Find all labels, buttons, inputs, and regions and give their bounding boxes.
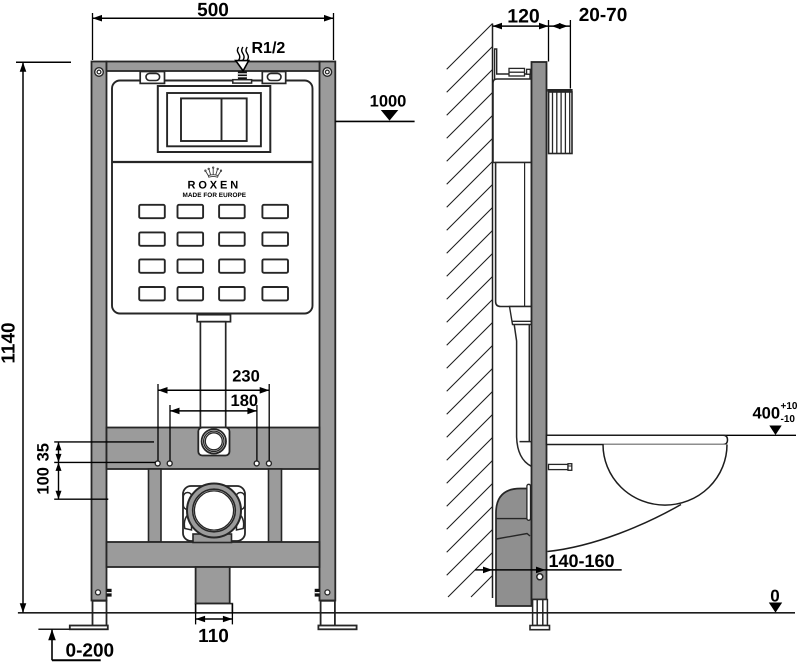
svg-text:1140: 1140 (0, 322, 20, 363)
svg-text:100: 100 (35, 467, 53, 495)
svg-text:500: 500 (197, 0, 229, 21)
svg-text:120: 120 (507, 6, 540, 28)
svg-text:20-70: 20-70 (579, 5, 628, 26)
svg-text:180: 180 (231, 392, 259, 410)
svg-text:-10: -10 (781, 414, 796, 425)
svg-text:230: 230 (232, 368, 260, 386)
svg-text:+10: +10 (781, 401, 798, 412)
svg-text:35: 35 (35, 443, 53, 461)
svg-text:400: 400 (753, 405, 781, 423)
svg-text:MADE FOR EUROPE: MADE FOR EUROPE (183, 192, 247, 199)
svg-text:0-200: 0-200 (66, 641, 115, 662)
svg-text:ROXEN: ROXEN (188, 180, 242, 192)
svg-text:110: 110 (198, 626, 229, 647)
svg-text:1000: 1000 (370, 93, 407, 111)
svg-text:140-160: 140-160 (549, 551, 615, 571)
svg-text:R1/2: R1/2 (252, 40, 286, 57)
